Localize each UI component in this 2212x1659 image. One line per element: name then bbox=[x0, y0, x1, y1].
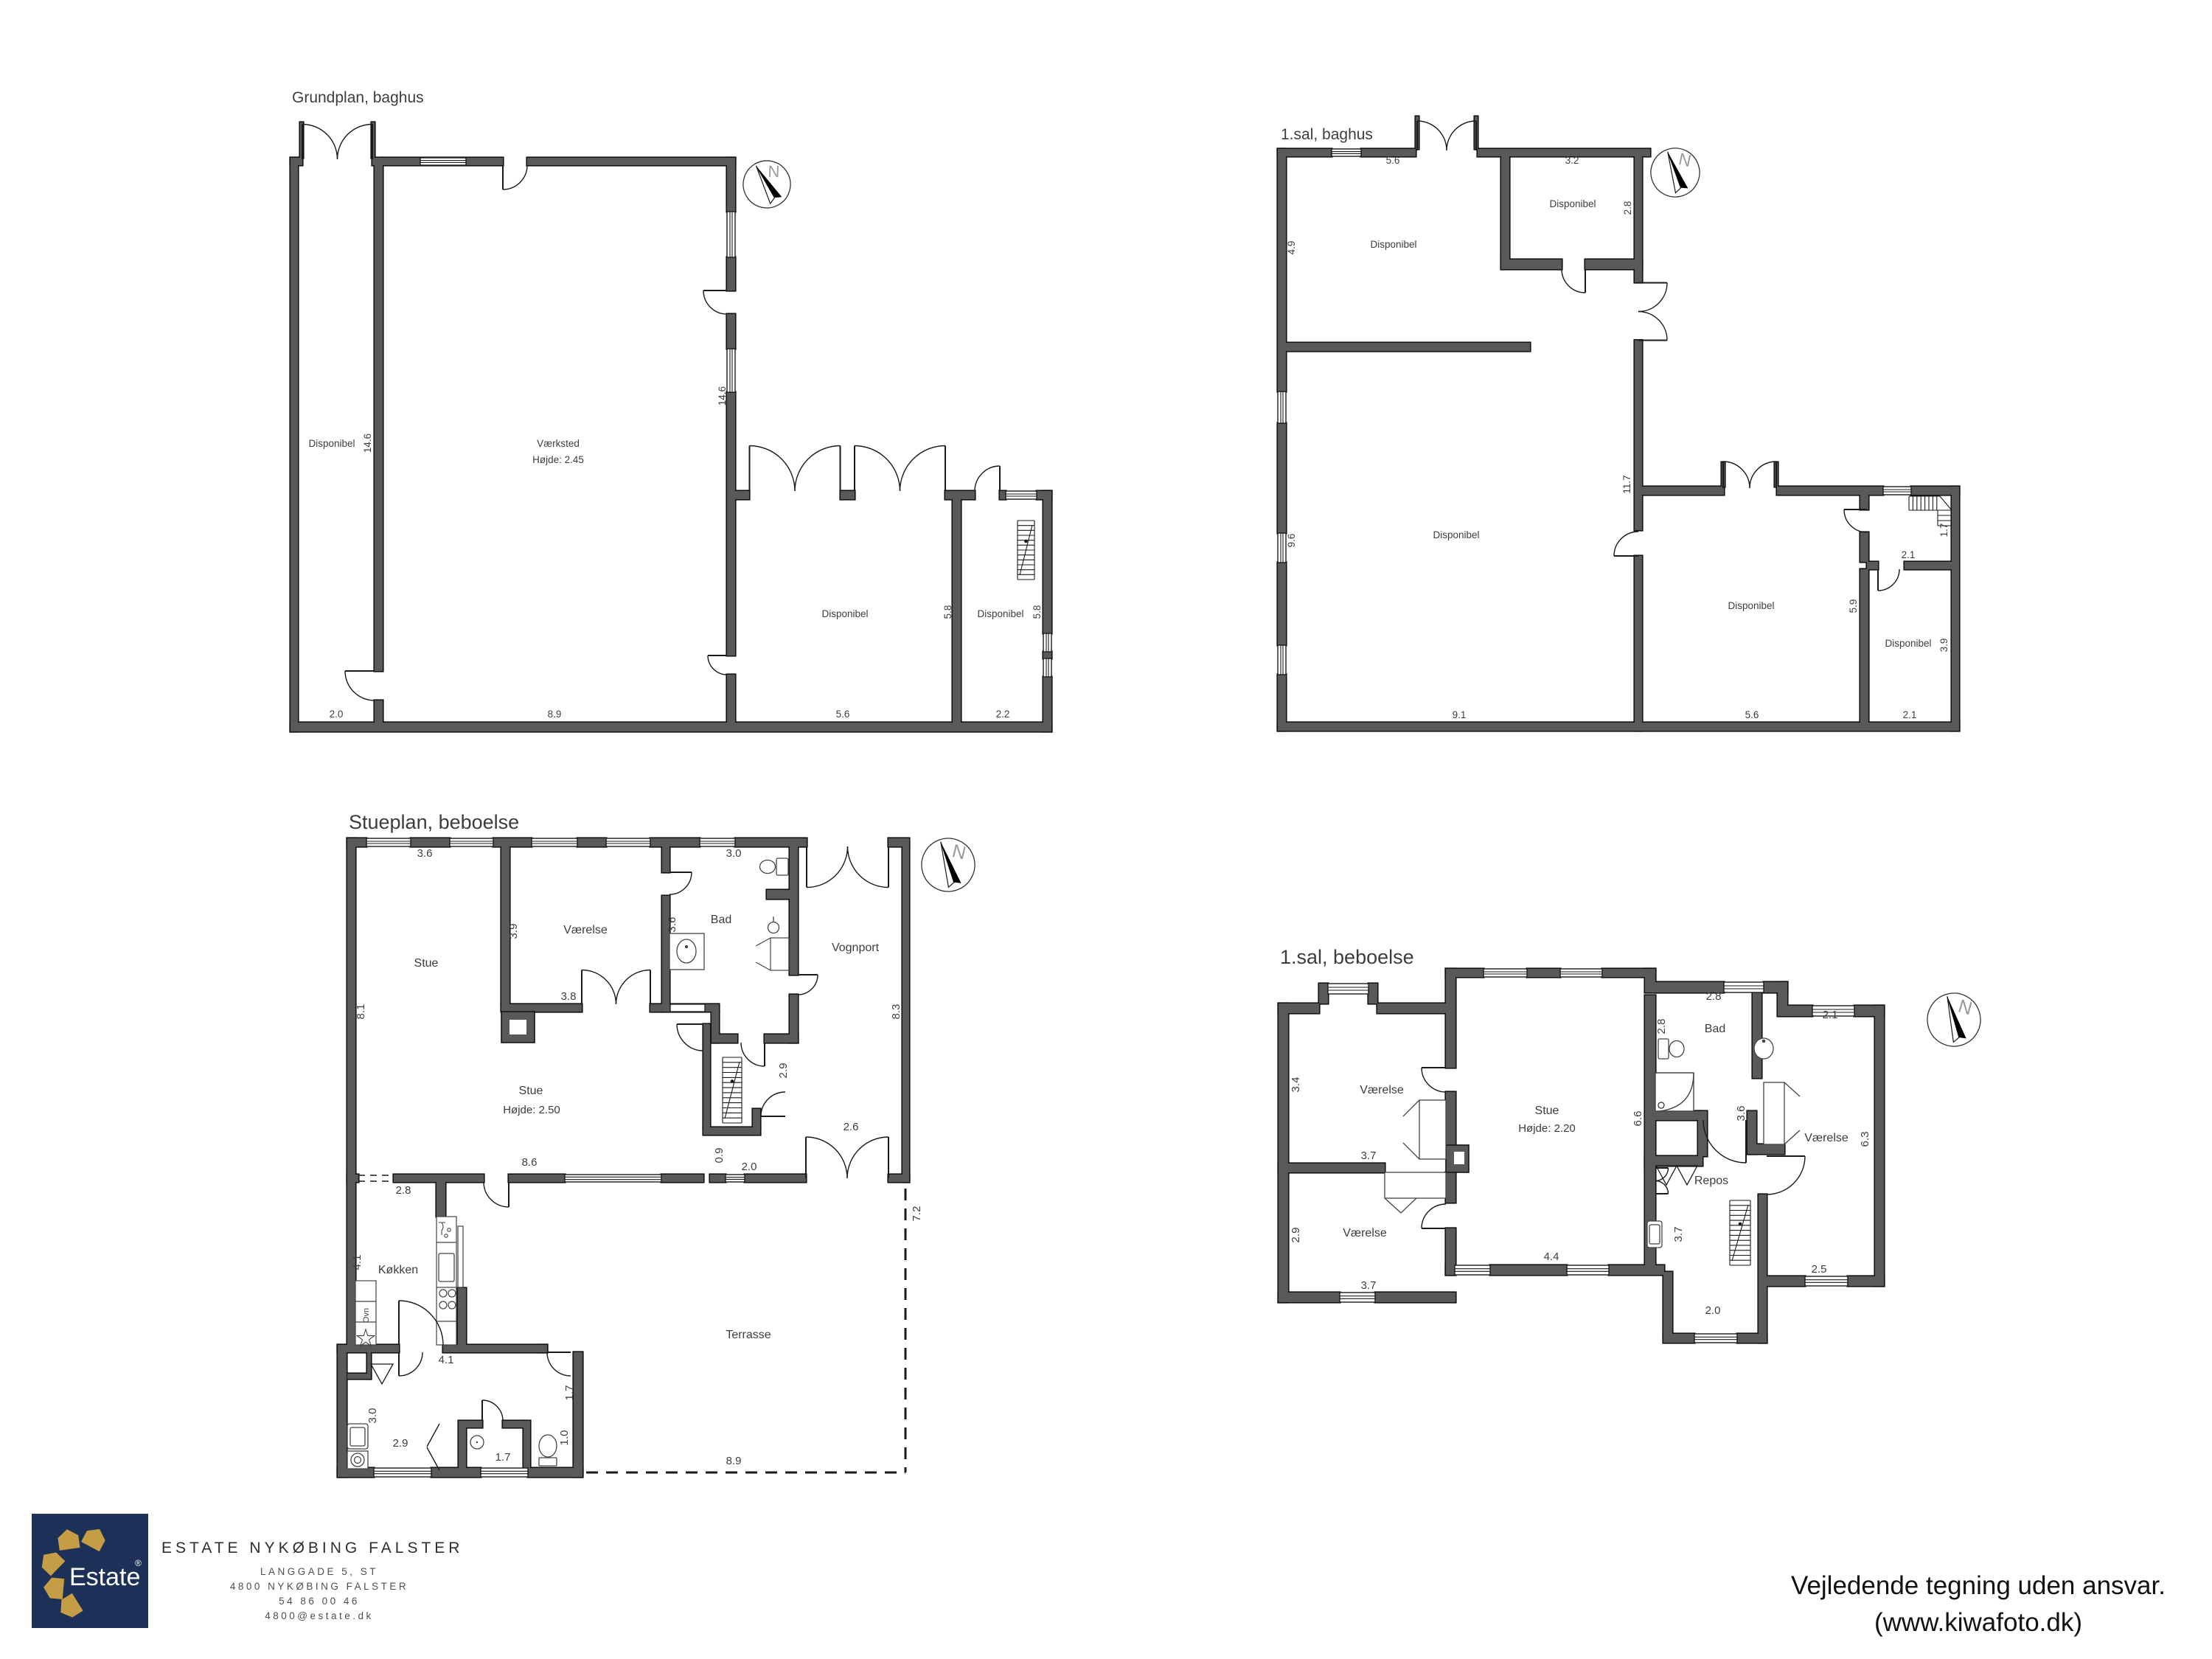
svg-text:5.8: 5.8 bbox=[942, 605, 953, 619]
svg-text:(www.kiwafoto.dk): (www.kiwafoto.dk) bbox=[1874, 1608, 2082, 1637]
svg-text:Stue: Stue bbox=[519, 1085, 543, 1097]
svg-text:Højde: 2.50: Højde: 2.50 bbox=[503, 1104, 560, 1116]
svg-text:54 86 00 46: 54 86 00 46 bbox=[279, 1596, 360, 1607]
svg-text:2.8: 2.8 bbox=[1706, 990, 1722, 1003]
svg-text:Værelse: Værelse bbox=[1804, 1132, 1848, 1144]
svg-text:4800@estate.dk: 4800@estate.dk bbox=[265, 1610, 374, 1621]
svg-text:8.9: 8.9 bbox=[548, 709, 562, 720]
svg-text:Stue: Stue bbox=[414, 957, 439, 970]
svg-text:Værelse: Værelse bbox=[1343, 1227, 1387, 1239]
svg-text:5.9: 5.9 bbox=[1848, 599, 1859, 613]
svg-text:4800 NYKØBING FALSTER: 4800 NYKØBING FALSTER bbox=[230, 1581, 408, 1592]
svg-text:Stueplan, beboelse: Stueplan, beboelse bbox=[349, 811, 519, 833]
svg-text:1.sal, baghus: 1.sal, baghus bbox=[1281, 126, 1373, 143]
svg-text:3.4: 3.4 bbox=[1290, 1077, 1302, 1093]
svg-text:7.2: 7.2 bbox=[911, 1206, 923, 1222]
svg-text:8.3: 8.3 bbox=[890, 1004, 902, 1020]
svg-text:4.1: 4.1 bbox=[439, 1354, 454, 1366]
svg-text:4.1: 4.1 bbox=[351, 1255, 364, 1270]
svg-text:6.6: 6.6 bbox=[1632, 1111, 1644, 1127]
svg-text:Disponibel: Disponibel bbox=[1370, 239, 1416, 250]
svg-text:2.9: 2.9 bbox=[393, 1437, 408, 1450]
svg-text:5.6: 5.6 bbox=[1386, 155, 1400, 166]
svg-text:2.9: 2.9 bbox=[1290, 1228, 1302, 1243]
svg-text:Disponibel: Disponibel bbox=[821, 608, 868, 619]
svg-text:ESTATE NYKØBING FALSTER: ESTATE NYKØBING FALSTER bbox=[161, 1540, 463, 1557]
svg-text:Højde: 2.20: Højde: 2.20 bbox=[1518, 1122, 1576, 1135]
svg-text:Værelse: Værelse bbox=[563, 924, 608, 936]
svg-text:4.4: 4.4 bbox=[1544, 1251, 1559, 1263]
svg-text:3.9: 3.9 bbox=[1938, 639, 1950, 653]
svg-text:Estate: Estate bbox=[69, 1563, 140, 1591]
svg-text:9.6: 9.6 bbox=[1286, 534, 1297, 548]
svg-text:2.0: 2.0 bbox=[1705, 1304, 1721, 1317]
svg-text:Stue: Stue bbox=[1535, 1105, 1559, 1117]
svg-text:2.8: 2.8 bbox=[396, 1184, 411, 1197]
svg-text:11.7: 11.7 bbox=[1621, 475, 1632, 493]
svg-text:Disponibel: Disponibel bbox=[1885, 638, 1931, 649]
svg-text:1.7: 1.7 bbox=[563, 1385, 576, 1401]
svg-text:2.0: 2.0 bbox=[330, 709, 344, 720]
svg-text:5.6: 5.6 bbox=[836, 709, 850, 720]
svg-text:3.8: 3.8 bbox=[561, 990, 577, 1003]
svg-text:14.6: 14.6 bbox=[362, 434, 373, 453]
svg-text:2.5: 2.5 bbox=[1812, 1263, 1827, 1276]
svg-text:3.6: 3.6 bbox=[1735, 1106, 1747, 1121]
svg-text:2.1: 2.1 bbox=[1823, 1009, 1838, 1021]
svg-text:6.3: 6.3 bbox=[1859, 1132, 1871, 1147]
svg-text:8.1: 8.1 bbox=[355, 1004, 367, 1020]
svg-text:Disponibel: Disponibel bbox=[1728, 600, 1774, 611]
svg-text:9.1: 9.1 bbox=[1453, 709, 1467, 720]
svg-text:2.1: 2.1 bbox=[1903, 709, 1917, 720]
svg-text:2.8: 2.8 bbox=[1655, 1019, 1668, 1034]
svg-text:Bad: Bad bbox=[711, 914, 731, 926]
svg-text:0.9: 0.9 bbox=[713, 1148, 726, 1164]
svg-text:Disponibel: Disponibel bbox=[1549, 198, 1596, 209]
svg-text:8.9: 8.9 bbox=[726, 1455, 742, 1467]
svg-text:2.9: 2.9 bbox=[777, 1063, 790, 1079]
svg-text:3.6: 3.6 bbox=[666, 917, 678, 933]
svg-text:LANGGADE 5, ST: LANGGADE 5, ST bbox=[260, 1566, 378, 1577]
svg-text:2.6: 2.6 bbox=[844, 1121, 859, 1133]
svg-text:Repos: Repos bbox=[1694, 1175, 1728, 1187]
svg-text:2.0: 2.0 bbox=[742, 1161, 757, 1173]
svg-text:Vognport: Vognport bbox=[832, 942, 880, 954]
svg-text:Grundplan, baghus: Grundplan, baghus bbox=[292, 89, 424, 106]
svg-text:5.6: 5.6 bbox=[1745, 709, 1759, 720]
svg-text:3.7: 3.7 bbox=[1361, 1150, 1377, 1162]
svg-text:14.6: 14.6 bbox=[717, 386, 728, 406]
svg-text:Værksted: Værksted bbox=[537, 438, 580, 449]
svg-text:Vejledende tegning uden ansvar: Vejledende tegning uden ansvar. bbox=[1791, 1571, 2166, 1600]
svg-text:3.6: 3.6 bbox=[417, 847, 433, 860]
svg-text:Disponibel: Disponibel bbox=[1433, 529, 1479, 540]
svg-text:8.6: 8.6 bbox=[522, 1156, 538, 1169]
svg-text:Bad: Bad bbox=[1705, 1023, 1725, 1035]
svg-text:3.0: 3.0 bbox=[726, 847, 742, 860]
svg-text:3.2: 3.2 bbox=[1565, 155, 1579, 166]
svg-text:3.0: 3.0 bbox=[366, 1408, 379, 1424]
svg-text:®: ® bbox=[135, 1558, 142, 1568]
svg-text:Værelse: Værelse bbox=[1360, 1084, 1404, 1096]
svg-text:N: N bbox=[768, 162, 780, 181]
svg-text:5.8: 5.8 bbox=[1032, 605, 1043, 619]
svg-text:1.7: 1.7 bbox=[495, 1451, 511, 1464]
svg-text:3.9: 3.9 bbox=[507, 924, 520, 939]
svg-text:Terrasse: Terrasse bbox=[726, 1329, 771, 1341]
svg-text:1.sal, beboelse: 1.sal, beboelse bbox=[1280, 946, 1414, 968]
svg-text:2.2: 2.2 bbox=[996, 709, 1010, 720]
svg-text:2.8: 2.8 bbox=[1622, 201, 1633, 215]
svg-text:2.1: 2.1 bbox=[1902, 549, 1916, 560]
svg-text:1.7: 1.7 bbox=[1938, 524, 1950, 538]
svg-text:3.7: 3.7 bbox=[1672, 1227, 1685, 1242]
svg-text:Disponibel: Disponibel bbox=[977, 608, 1023, 619]
svg-text:Disponibel: Disponibel bbox=[308, 438, 355, 449]
svg-text:3.7: 3.7 bbox=[1361, 1279, 1377, 1292]
svg-text:Køkken: Køkken bbox=[378, 1264, 418, 1276]
svg-text:Ovn: Ovn bbox=[362, 1308, 371, 1323]
svg-text:Højde: 2.45: Højde: 2.45 bbox=[532, 454, 584, 465]
svg-text:4.9: 4.9 bbox=[1286, 241, 1297, 255]
svg-text:1.0: 1.0 bbox=[558, 1430, 571, 1446]
